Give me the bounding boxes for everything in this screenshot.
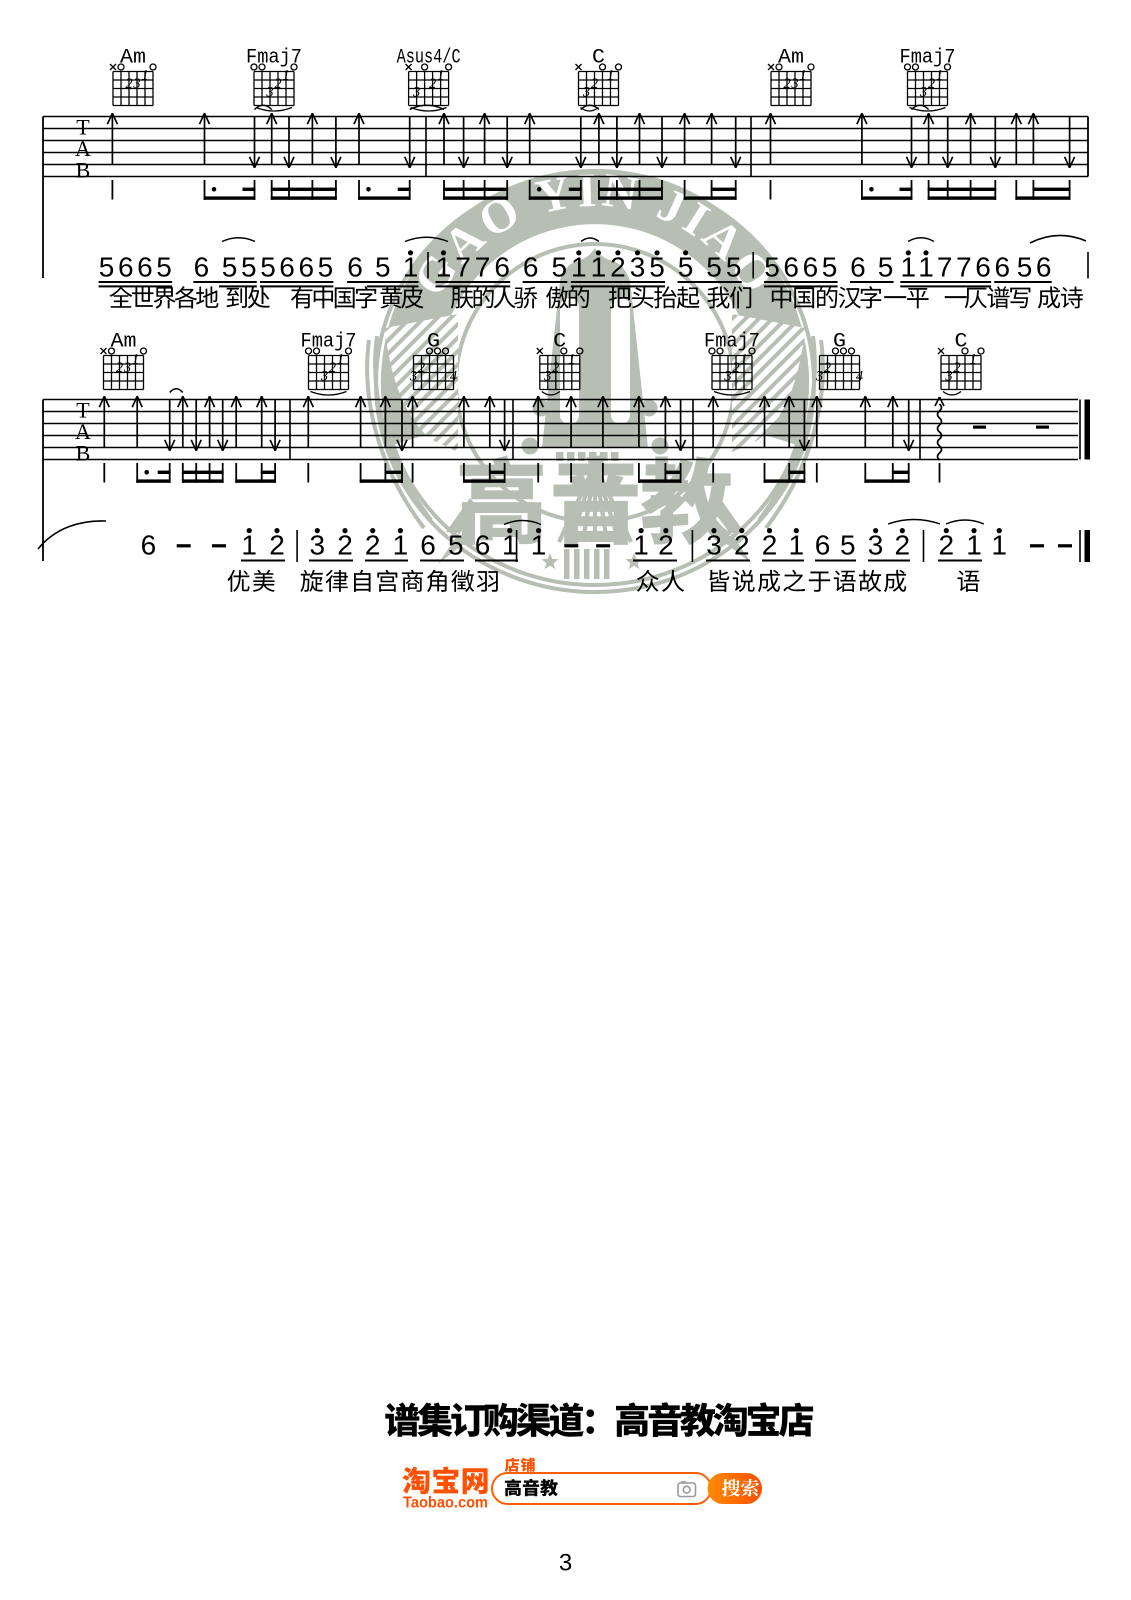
svg-text:6: 6 xyxy=(523,252,539,283)
svg-text:1: 1 xyxy=(966,530,982,561)
svg-text:3: 3 xyxy=(944,369,952,385)
svg-text:3: 3 xyxy=(265,85,273,101)
svg-text:5: 5 xyxy=(649,252,665,283)
svg-text:7: 7 xyxy=(455,252,471,283)
svg-text:3: 3 xyxy=(132,76,140,92)
svg-text:1: 1 xyxy=(991,530,1007,561)
svg-text:3: 3 xyxy=(919,85,927,101)
svg-text:1: 1 xyxy=(437,68,444,84)
svg-text:1: 1 xyxy=(132,352,139,368)
svg-text:2: 2 xyxy=(824,360,831,376)
svg-text:3: 3 xyxy=(706,530,722,561)
svg-text:2: 2 xyxy=(939,530,955,561)
svg-text:2: 2 xyxy=(552,360,559,376)
svg-text:6: 6 xyxy=(420,530,436,561)
svg-text:7: 7 xyxy=(956,252,972,283)
svg-text:3: 3 xyxy=(582,85,590,101)
svg-text:Taobao.com: Taobao.com xyxy=(403,1495,488,1512)
svg-text:Fmaj7: Fmaj7 xyxy=(301,331,357,354)
svg-text:2: 2 xyxy=(418,360,425,376)
svg-text:C: C xyxy=(592,47,605,70)
svg-text:B: B xyxy=(76,440,91,465)
svg-text:5: 5 xyxy=(726,252,742,283)
svg-text:3: 3 xyxy=(409,369,417,385)
svg-text:5: 5 xyxy=(222,252,238,283)
svg-text:6: 6 xyxy=(118,252,134,283)
svg-text:5: 5 xyxy=(1017,252,1033,283)
svg-text:2: 2 xyxy=(329,360,336,376)
svg-text:2: 2 xyxy=(337,530,353,561)
svg-text:5: 5 xyxy=(448,530,464,561)
svg-text:1: 1 xyxy=(936,68,943,84)
svg-text:1: 1 xyxy=(571,252,587,283)
svg-text:Fmaj7: Fmaj7 xyxy=(900,47,956,70)
svg-text:3: 3 xyxy=(412,85,420,101)
svg-text:Fmaj7: Fmaj7 xyxy=(704,331,760,354)
svg-text:3: 3 xyxy=(310,530,326,561)
svg-text:5: 5 xyxy=(764,252,780,283)
svg-text:C: C xyxy=(553,331,566,354)
svg-text:3: 3 xyxy=(790,76,798,92)
svg-text:1: 1 xyxy=(799,68,806,84)
svg-text:5: 5 xyxy=(552,252,568,283)
svg-text:2: 2 xyxy=(658,530,674,561)
svg-text:6: 6 xyxy=(803,252,819,283)
svg-text:2: 2 xyxy=(762,530,778,561)
svg-text:7: 7 xyxy=(475,252,491,283)
svg-text:1: 1 xyxy=(969,352,976,368)
svg-text:3: 3 xyxy=(123,360,131,376)
svg-text:1: 1 xyxy=(531,530,547,561)
svg-text:6: 6 xyxy=(194,252,210,283)
svg-text:2: 2 xyxy=(274,76,281,92)
svg-text:3: 3 xyxy=(868,530,884,561)
svg-text:1: 1 xyxy=(241,530,257,561)
svg-text:6: 6 xyxy=(347,252,363,283)
svg-text:6: 6 xyxy=(975,252,991,283)
svg-text:6: 6 xyxy=(815,530,831,561)
svg-text:5: 5 xyxy=(375,252,391,283)
svg-text:1: 1 xyxy=(591,252,607,283)
svg-text:4: 4 xyxy=(856,369,863,385)
svg-text:1: 1 xyxy=(141,68,148,84)
svg-text:6: 6 xyxy=(995,252,1011,283)
svg-text:2: 2 xyxy=(610,252,626,283)
svg-text:1: 1 xyxy=(282,68,289,84)
svg-text:7: 7 xyxy=(937,252,953,283)
svg-text:5: 5 xyxy=(678,252,694,283)
svg-text:2: 2 xyxy=(895,530,911,561)
svg-text:3: 3 xyxy=(723,369,731,385)
svg-text:6: 6 xyxy=(783,252,799,283)
svg-text:6: 6 xyxy=(137,252,153,283)
svg-text:5: 5 xyxy=(156,252,172,283)
svg-text:5: 5 xyxy=(318,252,334,283)
svg-text:6: 6 xyxy=(1036,252,1052,283)
svg-text:1: 1 xyxy=(607,68,614,84)
svg-text:2: 2 xyxy=(928,76,935,92)
svg-text:1: 1 xyxy=(568,352,575,368)
svg-text:2: 2 xyxy=(783,76,790,92)
svg-text:1: 1 xyxy=(633,530,649,561)
svg-text:2: 2 xyxy=(269,530,285,561)
svg-text:5: 5 xyxy=(241,252,257,283)
svg-text:2: 2 xyxy=(732,360,739,376)
svg-text:3: 3 xyxy=(559,1550,572,1577)
svg-text:5: 5 xyxy=(99,252,115,283)
svg-text:6: 6 xyxy=(279,252,295,283)
svg-text:3: 3 xyxy=(320,369,328,385)
svg-text:G: G xyxy=(427,331,440,354)
svg-text:1: 1 xyxy=(901,252,917,283)
svg-text:6: 6 xyxy=(299,252,315,283)
svg-text:1: 1 xyxy=(337,352,344,368)
svg-text:6: 6 xyxy=(850,252,866,283)
svg-text:2: 2 xyxy=(953,360,960,376)
svg-text:6: 6 xyxy=(475,530,491,561)
svg-text:5: 5 xyxy=(260,252,276,283)
svg-text:1: 1 xyxy=(789,530,805,561)
svg-text:2: 2 xyxy=(365,530,381,561)
svg-text:6: 6 xyxy=(494,252,510,283)
svg-text:5: 5 xyxy=(706,252,722,283)
svg-text:5: 5 xyxy=(840,530,856,561)
svg-text:C: C xyxy=(955,331,968,354)
svg-text:G: G xyxy=(833,331,846,354)
svg-text:2: 2 xyxy=(429,76,436,92)
svg-text:3: 3 xyxy=(543,369,551,385)
svg-text:1: 1 xyxy=(502,530,518,561)
svg-text:1: 1 xyxy=(436,252,452,283)
svg-text:5: 5 xyxy=(878,252,894,283)
svg-text:3: 3 xyxy=(815,369,823,385)
svg-text:1: 1 xyxy=(393,530,409,561)
svg-text:2: 2 xyxy=(591,76,598,92)
svg-text:1: 1 xyxy=(918,252,934,283)
svg-text:2: 2 xyxy=(734,530,750,561)
svg-text:6: 6 xyxy=(141,530,157,561)
svg-text:1: 1 xyxy=(403,252,419,283)
svg-text:5: 5 xyxy=(822,252,838,283)
svg-text:Fmaj7: Fmaj7 xyxy=(246,47,302,70)
svg-text:3: 3 xyxy=(630,252,646,283)
svg-text:4: 4 xyxy=(450,369,457,385)
svg-text:2: 2 xyxy=(125,76,132,92)
svg-text:1: 1 xyxy=(740,352,747,368)
svg-text:2: 2 xyxy=(116,360,123,376)
svg-text:B: B xyxy=(76,157,91,182)
